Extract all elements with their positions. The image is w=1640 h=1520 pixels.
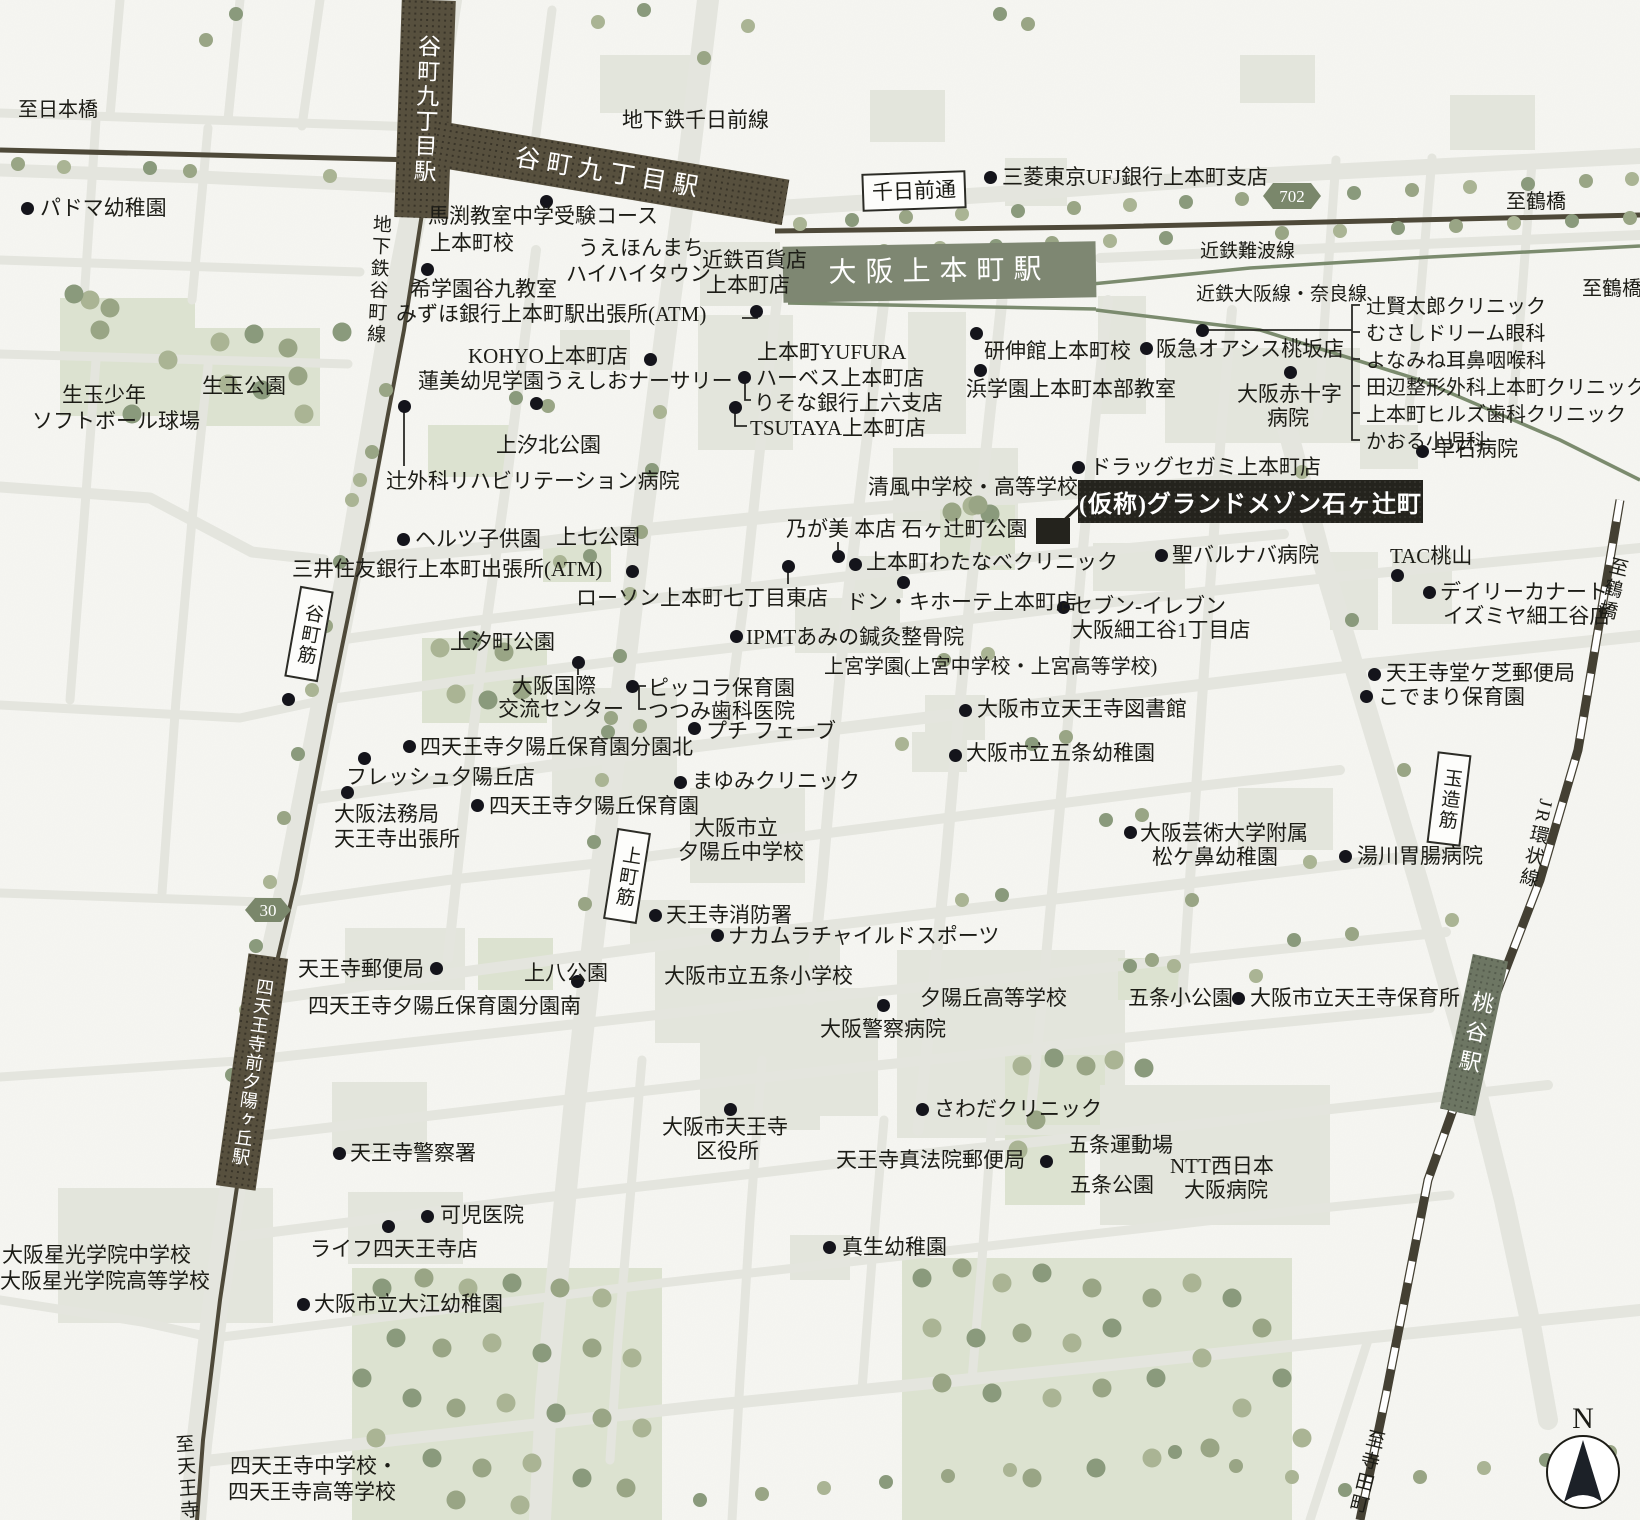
tree-icon (211, 333, 230, 352)
tree-icon (1023, 1469, 1042, 1488)
poi-dot (403, 740, 416, 753)
tree-icon (613, 649, 627, 663)
poi-dot (849, 558, 862, 571)
map-label: デイリーカナート (1440, 582, 1608, 603)
map-label: 三井住友銀行上本町出張所(ATM) (292, 559, 602, 580)
tree-icon (447, 685, 466, 704)
tree-icon (1011, 204, 1025, 218)
tree-icon (447, 1491, 466, 1510)
building-block (1450, 95, 1535, 150)
poi-dot (297, 1298, 310, 1311)
map-label: 大阪星光学院中学校 (2, 1245, 191, 1266)
tree-icon (1345, 927, 1359, 941)
map-label: 大阪細工谷1丁目店 (1072, 620, 1251, 641)
map-label: NTT西日本 (1170, 1156, 1274, 1177)
map-label: ピッコラ保育園 (648, 678, 795, 699)
map-label: 上七公園 (556, 527, 640, 548)
poi-dot (782, 560, 795, 573)
poi-dot (1040, 1155, 1053, 1168)
tree-icon (547, 1404, 566, 1423)
tree-icon (941, 1469, 955, 1483)
poi-dot (711, 929, 724, 942)
map-label: 四天王寺夕陽丘保育園分園南 (308, 996, 581, 1017)
tree-icon (353, 1369, 372, 1388)
poi-dot (530, 397, 543, 410)
tree-icon (483, 1334, 502, 1353)
tree-icon (1021, 17, 1035, 31)
tree-icon (1287, 933, 1301, 947)
poi-dot (1360, 690, 1373, 703)
tree-icon (933, 1374, 952, 1393)
map-label: 天王寺警察署 (350, 1143, 476, 1164)
map-label: 近鉄百貨店 (702, 250, 807, 271)
tree-icon (245, 325, 264, 344)
map-label: 五条小公園 (1128, 988, 1233, 1009)
map-label: 天王寺郵便局 (298, 959, 424, 980)
tree-icon (1087, 1459, 1106, 1478)
tree-icon (511, 1496, 530, 1515)
tree-icon (578, 897, 592, 911)
map-label: 清風中学校・高等学校 (868, 477, 1078, 498)
map-label: 夕陽丘中学校 (678, 842, 804, 863)
tree-icon (633, 1419, 652, 1438)
map-label: 大阪市立天王寺図書館 (977, 699, 1187, 720)
poi-dot (959, 704, 972, 717)
map-label: 大阪法務局 (334, 804, 439, 825)
tree-icon (1013, 1057, 1032, 1076)
poi-dot (738, 371, 751, 384)
map-label: セブン-イレブン (1072, 596, 1226, 617)
map-label: 天王寺堂ケ芝郵便局 (1386, 663, 1575, 684)
road-name-box: 千日前通 (861, 170, 966, 212)
poi-dot (430, 962, 443, 975)
poi-dot (1124, 826, 1137, 839)
tree-icon (637, 3, 651, 17)
tree-icon (755, 1487, 769, 1501)
poi-dot (1368, 668, 1381, 681)
building-block (600, 55, 695, 113)
tree-icon (879, 1475, 893, 1489)
poi-dot (970, 327, 983, 340)
tree-icon (923, 1319, 942, 1338)
map-label: 大阪市立五条幼稚園 (966, 743, 1155, 764)
map-label: 五条公園 (1070, 1175, 1154, 1196)
tree-icon (479, 691, 498, 710)
tree-icon (143, 161, 157, 175)
map-label: 上本町店 (706, 275, 790, 296)
tree-icon (1345, 613, 1359, 627)
station-name: 大阪上本町駅 (828, 256, 1050, 288)
tree-icon (289, 367, 308, 386)
map-label: 阪急オアシス桃坂店 (1156, 339, 1344, 360)
tree-icon (1063, 1334, 1082, 1353)
tree-icon (1099, 813, 1113, 827)
tree-icon (503, 1274, 522, 1293)
tree-icon (229, 7, 243, 21)
tree-icon (1565, 214, 1579, 228)
tree-icon (1183, 1274, 1202, 1293)
map-label: 上本町YUFURA (757, 342, 906, 363)
tree-icon (693, 1493, 707, 1507)
tree-icon (1103, 234, 1117, 248)
tree-icon (11, 157, 25, 171)
tree-icon (1229, 1459, 1243, 1473)
map-label: パドマ幼稚園 (40, 198, 167, 219)
tree-icon (1003, 1463, 1017, 1477)
map-label: 大阪赤十字 (1237, 384, 1342, 405)
map-label: 地下鉄千日前線 (622, 110, 769, 131)
tree-icon (623, 1349, 642, 1368)
tree-icon (1045, 1049, 1064, 1068)
map-label: 松ケ鼻幼稚園 (1152, 847, 1278, 868)
poi-dot (626, 680, 639, 693)
map-label: KOHYO上本町店 (468, 346, 628, 367)
tree-icon (1333, 224, 1347, 238)
station-band: 谷町九丁目駅 (394, 0, 456, 219)
tree-icon (541, 399, 555, 413)
poi-dot (974, 364, 987, 377)
map-label: 生玉少年 (62, 385, 146, 406)
route-shield-number: 30 (260, 901, 277, 920)
map-label: TSUTAYA上本町店 (750, 418, 926, 439)
tree-icon (367, 1429, 386, 1448)
tree-icon (1413, 1470, 1427, 1484)
poi-dot (832, 550, 845, 563)
map-label: 研伸館上本町校 (984, 341, 1131, 362)
map-label: IPMTあみの鍼灸整骨院 (746, 627, 964, 648)
map-label: 希学園谷九教室 (410, 279, 557, 300)
map-label: まゆみクリニック (692, 771, 860, 792)
tree-icon (1179, 195, 1193, 209)
poi-dot (572, 656, 585, 669)
map-label: 四天王寺高等学校 (228, 1482, 396, 1503)
map-label: 病院 (1267, 408, 1309, 429)
map-label: 大阪病院 (1184, 1180, 1268, 1201)
map-label: 浜学園上本町本部教室 (966, 379, 1176, 400)
map-label: 乃が美 本店 石ヶ辻町公園 (786, 519, 1028, 540)
poi-dot (358, 752, 371, 765)
building-block (790, 1235, 850, 1280)
map-label: ライフ四天王寺店 (310, 1239, 478, 1260)
tree-icon (91, 321, 110, 340)
tree-icon (955, 893, 969, 907)
tree-icon (793, 217, 807, 231)
poi-dot (823, 1241, 836, 1254)
poi-dot (1140, 342, 1153, 355)
map-label: 上本町校 (430, 233, 514, 254)
tree-icon (1235, 192, 1249, 206)
poi-dot (729, 401, 742, 414)
tree-icon (1521, 177, 1535, 191)
map-label: 聖バルナバ病院 (1172, 545, 1319, 566)
tree-icon (431, 639, 450, 658)
property-site-marker (1036, 518, 1070, 544)
building-block (1240, 55, 1315, 103)
tree-icon (955, 207, 969, 221)
poi-dot (688, 722, 701, 735)
tree-icon (593, 1289, 612, 1308)
map-label: 四天王寺夕陽丘保育園分園北 (420, 737, 693, 758)
tree-icon (913, 1269, 932, 1288)
tree-icon (593, 1409, 612, 1428)
map-base-layer: 70230N (0, 0, 1640, 1520)
map-label: ナカムラチャイルドスポーツ (728, 926, 999, 947)
map-label: 上本町ヒルズ歯科クリニック (1366, 405, 1626, 425)
tree-icon (509, 391, 523, 405)
tree-icon (1147, 1369, 1166, 1388)
tree-icon (1193, 1349, 1212, 1368)
map-label: 至鶴橋 (1506, 192, 1566, 212)
tree-icon (895, 737, 909, 751)
tree-icon (1275, 226, 1289, 240)
tree-icon (1185, 893, 1199, 907)
tree-icon (551, 1279, 570, 1298)
tree-icon (403, 1389, 422, 1408)
map-label: 至日本橋 (18, 100, 98, 120)
map-label: 大阪市立 (694, 818, 778, 839)
tree-icon (587, 835, 601, 849)
poi-dot (916, 1103, 929, 1116)
tree-icon (433, 1339, 452, 1358)
poi-dot (1391, 569, 1404, 582)
poi-dot (282, 693, 295, 706)
map-label: 五条運動場 (1068, 1135, 1173, 1156)
map-label: ハーベス上本町店 (756, 368, 924, 389)
map-label: ヘルツ子供園 (415, 529, 541, 550)
tree-icon (1347, 186, 1361, 200)
tree-icon (533, 1344, 552, 1363)
tree-icon (1625, 172, 1639, 186)
tree-icon (523, 1454, 542, 1473)
tree-icon (617, 1479, 636, 1498)
map-label: 大阪市立大江幼稚園 (314, 1294, 503, 1315)
tree-icon (279, 339, 298, 358)
map-label: フレッシュ夕陽丘店 (346, 767, 535, 788)
tree-icon (101, 299, 120, 318)
tree-icon (379, 383, 393, 397)
poi-dot (1423, 586, 1436, 599)
map-label: 天王寺出張所 (334, 829, 460, 850)
poi-dot (333, 1147, 346, 1160)
tree-icon (1103, 1319, 1122, 1338)
tree-icon (1285, 1470, 1299, 1484)
map-label: TAC桃山 (1390, 546, 1472, 567)
tree-icon (1123, 198, 1137, 212)
tree-icon (591, 15, 605, 29)
tree-icon (595, 773, 609, 787)
tree-icon (1623, 211, 1637, 225)
map-label: 上八公園 (524, 963, 608, 984)
poi-dot (1284, 366, 1297, 379)
tree-icon (199, 33, 213, 47)
map-label: 近鉄大阪線・奈良線 (1196, 285, 1367, 304)
poi-dot (1196, 324, 1209, 337)
map-label: 天王寺消防署 (666, 905, 792, 926)
poi-dot (897, 576, 910, 589)
poi-dot (21, 202, 34, 215)
map-label: ハイハイタウン (566, 264, 711, 285)
map-label: 大阪市天王寺 (662, 1117, 788, 1138)
tree-icon (415, 1269, 434, 1288)
tree-icon (1477, 1461, 1491, 1475)
tree-icon (967, 1329, 986, 1348)
tree-icon (65, 285, 84, 304)
tree-icon (1168, 1445, 1182, 1459)
map-label: 区役所 (696, 1141, 759, 1162)
map-label: 三菱東京UFJ銀行上本町支店 (1002, 167, 1268, 188)
tree-icon (1405, 183, 1419, 197)
map-label: 大阪警察病院 (820, 1019, 946, 1040)
map-label: 早石病院 (1434, 439, 1518, 460)
property-highlight-label: (仮称)グランドメゾン石ヶ辻町 (1078, 480, 1423, 523)
map-label: ローソン上本町七丁目東店 (576, 588, 828, 609)
map-label: 可児医院 (440, 1205, 524, 1226)
tree-icon (817, 1481, 831, 1495)
poi-dot (1155, 549, 1168, 562)
poi-dot (750, 305, 763, 318)
poi-dot (1339, 850, 1352, 863)
tree-icon (1135, 1059, 1154, 1078)
tree-icon (277, 811, 291, 825)
poi-dot (674, 776, 687, 789)
poi-dot (730, 630, 743, 643)
map-label: 田辺整形外科上本町クリニック (1366, 378, 1640, 398)
tree-icon (1135, 808, 1149, 822)
tree-icon (1233, 1399, 1252, 1418)
tree-icon (1067, 201, 1081, 215)
map-label: 湯川胃腸病院 (1357, 846, 1483, 867)
tree-icon (953, 1259, 972, 1278)
map-label: 交流センター (498, 699, 624, 720)
tree-icon (1303, 855, 1317, 869)
tree-icon (1167, 959, 1181, 973)
map-label: ソフトボール球場 (32, 411, 200, 432)
tree-icon (1223, 1289, 1242, 1308)
map-label: こでまり保育園 (1378, 687, 1525, 708)
tree-icon (57, 160, 71, 174)
tree-icon (993, 1274, 1012, 1293)
poi-dot (421, 1210, 434, 1223)
tree-icon (305, 683, 319, 697)
map-label: 大阪芸術大学附属 (1140, 823, 1308, 844)
tree-icon (983, 1384, 1002, 1403)
tree-icon (497, 1394, 516, 1413)
poi-dot (1232, 992, 1245, 1005)
tree-icon (995, 888, 1009, 902)
tree-icon (1507, 216, 1521, 230)
tree-icon (573, 1469, 592, 1488)
tree-icon (1579, 174, 1593, 188)
poi-dot (382, 1220, 395, 1233)
tree-icon (447, 1399, 466, 1418)
tree-icon (1143, 1289, 1162, 1308)
tree-icon (1123, 959, 1137, 973)
poi-dot (649, 909, 662, 922)
map-label: 生玉公園 (202, 376, 286, 397)
map-label: 真生幼稚園 (842, 1237, 947, 1258)
poi-dot (877, 999, 890, 1012)
map-label: 上宮学園(上宮中学校・上宮高等学校) (824, 657, 1157, 677)
map-label: 近鉄難波線 (1200, 242, 1295, 261)
building-block (870, 90, 945, 142)
tree-icon (323, 169, 337, 183)
tree-icon (295, 405, 314, 424)
poi-dot (984, 171, 997, 184)
tree-icon (365, 445, 379, 459)
tree-icon (633, 719, 647, 733)
tree-icon (1083, 1279, 1102, 1298)
tree-icon (1463, 180, 1477, 194)
map-label: 至鶴橋 (1582, 279, 1640, 299)
tree-icon (1159, 231, 1173, 245)
map-label: 四天王寺中学校・ (230, 1456, 398, 1477)
tree-icon (583, 1339, 602, 1358)
poi-dot (471, 799, 484, 812)
poi-dot (626, 565, 639, 578)
poi-dot (724, 1103, 737, 1116)
map-label: 上汐町公園 (450, 632, 555, 653)
tree-icon (1445, 913, 1459, 927)
map-label: 夕陽丘高等学校 (920, 988, 1067, 1009)
tree-icon (249, 939, 263, 953)
tree-icon (1043, 1389, 1062, 1408)
poi-dot (397, 533, 410, 546)
poi-dot (421, 263, 434, 276)
tree-icon (1093, 1379, 1112, 1398)
map-label: ドラッグセガミ上本町店 (1090, 457, 1321, 478)
poi-dot (398, 400, 411, 413)
tree-icon (1449, 219, 1463, 233)
map-label: 辻賢太郎クリニック (1366, 297, 1546, 317)
map-label: 大阪国際 (512, 676, 596, 697)
tree-icon (473, 1459, 492, 1478)
map-label: りそな銀行上六支店 (754, 393, 943, 414)
tree-icon (333, 323, 352, 342)
map-label: さわだクリニック (934, 1099, 1102, 1120)
station-band: 大阪上本町駅 (783, 241, 1097, 302)
tree-icon (1105, 1051, 1124, 1070)
map-label: イズミヤ細工谷店 (1443, 606, 1610, 627)
map-label: プチ フェーブ (706, 721, 836, 742)
tree-icon (993, 7, 1007, 21)
tree-icon (183, 164, 197, 178)
tree-icon (899, 210, 913, 224)
tree-icon (845, 213, 859, 227)
map-label: 蓮美幼児学園うえしおナーサリー (418, 371, 733, 392)
map-label: むさしドリーム眼科 (1366, 324, 1545, 344)
tree-icon (159, 351, 178, 370)
map-label: みずほ銀行上本町駅出張所(ATM) (396, 304, 706, 325)
map-label: 天王寺真法院郵便局 (836, 1150, 1025, 1171)
tree-icon (653, 405, 667, 419)
map-label: ドン・キホーテ上本町店 (846, 592, 1077, 613)
map-label: 大阪市立五条小学校 (664, 966, 853, 987)
tree-icon (423, 1449, 442, 1468)
map-label: 辻外科リハビリテーション病院 (386, 471, 680, 492)
tree-icon (345, 493, 359, 507)
poi-dot (644, 353, 657, 366)
tree-icon (1201, 1439, 1220, 1458)
tree-icon (263, 875, 277, 889)
map-label: うえほんまち (578, 238, 704, 259)
tree-icon (1273, 1369, 1292, 1388)
tree-icon (1013, 1324, 1032, 1343)
tree-icon (1077, 1057, 1096, 1076)
tree-icon (1253, 1319, 1272, 1338)
map-label: 上汐北公園 (496, 435, 601, 456)
route-shield-number: 702 (1279, 187, 1305, 206)
tree-icon (697, 51, 711, 65)
